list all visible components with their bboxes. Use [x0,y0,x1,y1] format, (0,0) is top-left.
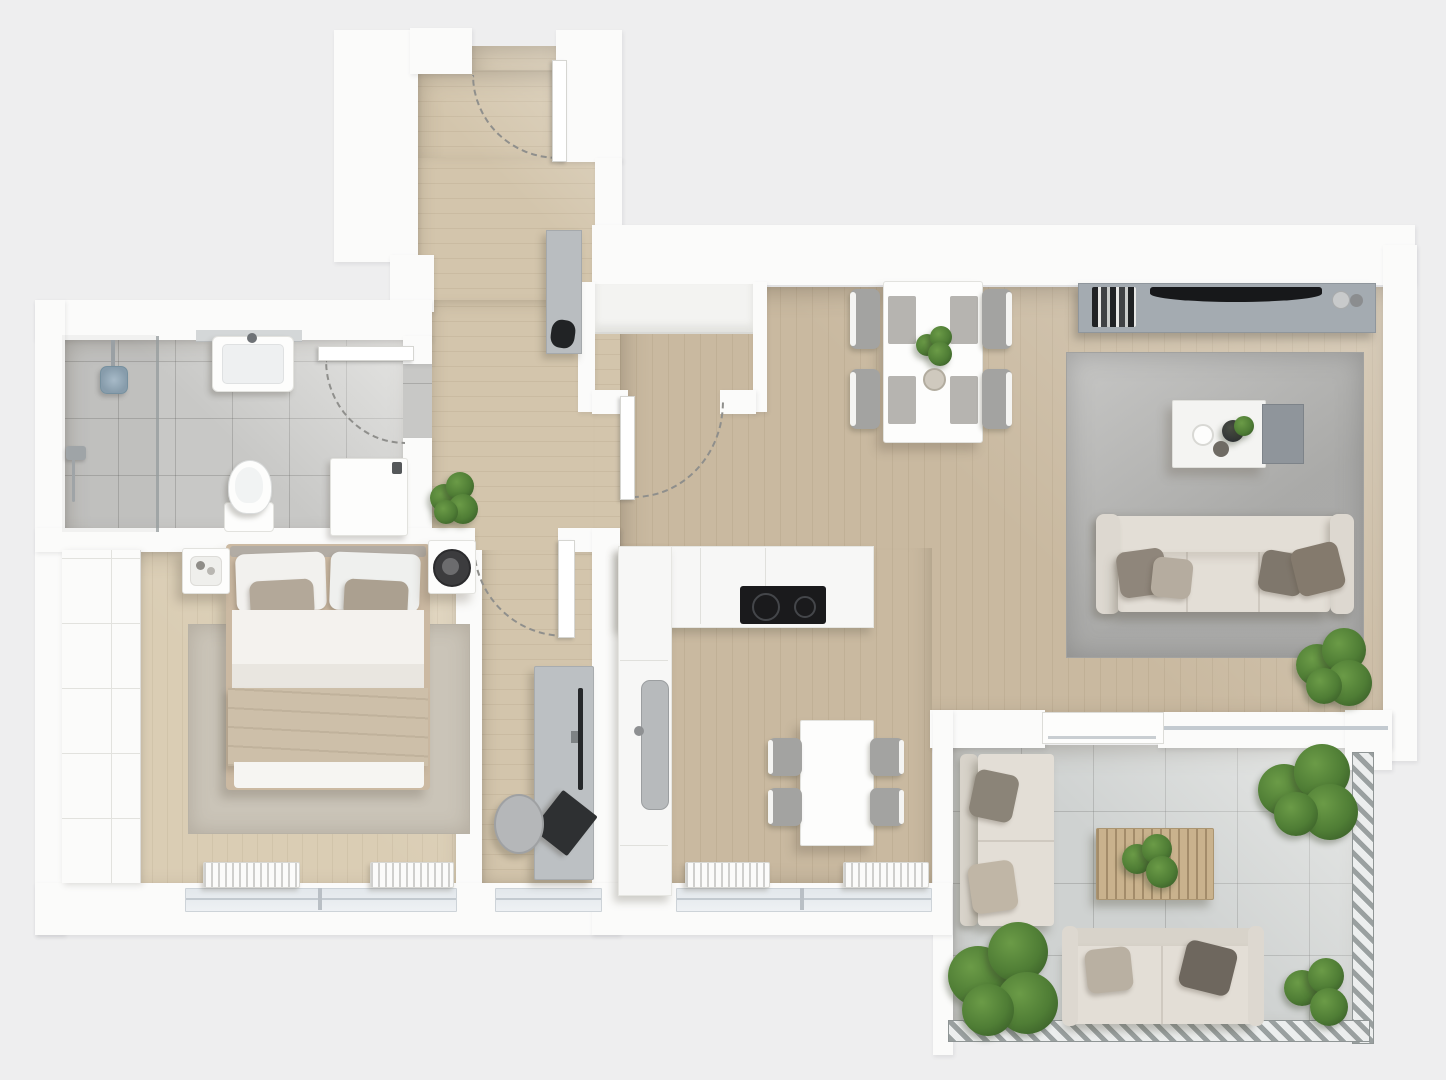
bedroom-radiator-right [370,862,454,888]
outdoor-sofa-bottom-cushion-1 [1084,946,1134,995]
kitchen-window-mullion [800,888,804,910]
kitchen-radiator-left [685,862,770,888]
shower-arm [111,340,115,368]
sofa-cushion-2 [1150,556,1194,600]
balcony-sliding-door [1042,712,1164,744]
entry-left-wall [334,30,418,262]
living-chair-1 [850,289,880,349]
bed-blanket [228,688,428,766]
living-right-wall [1383,245,1417,761]
hallway-living-strip-floor [595,396,620,532]
bathroom-door-leaf [318,346,414,361]
shower-faucet-handle [66,446,86,460]
outdoor-sofa-bottom-armrest-left [1062,926,1078,1026]
washbasin-bowl [222,344,284,384]
placemat-1 [888,296,916,344]
kitchen-chair-4 [870,788,904,826]
balcony-sliding-door-track [1048,736,1156,739]
washbasin-faucet [247,333,257,343]
outdoor-table-plant [1122,834,1180,888]
kitchen-chair-2 [768,788,802,826]
desk-monitor-stand [571,731,578,743]
toilet-seat [235,467,263,503]
placemat-3 [888,376,916,424]
desk-monitor [578,688,583,790]
kitchen-counter-seam-1 [700,548,701,624]
outdoor-sofa-bottom-armrest-right [1248,926,1264,1026]
outer-left-wall [35,300,65,935]
kitchen-radiator-right [843,862,929,888]
balcony-plant-bottom-right [1284,958,1350,1032]
bedroom-radiator-left [203,862,300,888]
kitchen-counter-seam-3 [620,660,668,661]
washer-detail [392,462,402,474]
front-door-leaf [552,60,567,162]
bed-mattress-foot [234,762,424,788]
placemat-2 [950,296,978,344]
shower-hose [72,458,75,502]
hallway-potted-plant [428,472,478,528]
living-floor-plant [1296,628,1374,708]
kitchen-table [800,720,874,846]
bedroom-door-leaf [558,540,575,638]
bedroom-window-mullion [318,888,322,910]
entry-top-wall [410,28,472,74]
living-chair-3 [982,289,1012,349]
nightstand-left-cup-2 [207,567,215,575]
kitchen-counter-seam-4 [620,845,668,846]
balcony-plant-top-right [1258,744,1362,840]
kitchen-sink-faucet [634,726,644,736]
shower-glass-screen [156,336,159,532]
nightstand-right-tray-inner [442,558,459,575]
desk-stool [494,794,544,854]
kitchen-chair-1 [768,738,802,776]
coffee-table-gray [1262,404,1304,464]
balcony-window-glass [1162,726,1388,730]
nook-window [495,888,602,912]
cooktop-burner-right [794,596,816,618]
kitchen-sink [641,680,669,810]
floor-plan-page: { "meta": { "title": "3D top-down floor … [0,0,1446,1080]
table-plant [916,326,954,366]
nightstand-left-cup [196,561,205,570]
coffee-table-bowl [1213,441,1229,457]
kitchen-left-wall [592,528,620,910]
outdoor-sofa-bottom-back [1068,928,1258,948]
shower-head [100,366,128,394]
closet-post-right [720,390,756,414]
balcony-plant-bottom-left [948,922,1063,1047]
corridor-right-wall [595,158,622,230]
console-books [1092,287,1136,327]
shower-tray-shade [62,335,156,532]
kitchen-window [676,888,932,912]
closet-shelf [595,284,753,334]
console-decor-1 [1332,291,1350,309]
kitchen-chair-3 [870,738,904,776]
nightstand-left-tray [190,556,222,586]
living-chair-2 [850,369,880,429]
placemat-4 [950,376,978,424]
table-bowl [923,368,946,391]
living-chair-4 [982,369,1012,429]
bathroom-doorway-floor [403,362,432,440]
coffee-table-cup [1192,424,1214,446]
cooktop-burner-left [752,593,780,621]
outdoor-sofa-left-cushion-2 [967,859,1020,915]
bedroom-wardrobe [62,550,141,883]
closet-door-leaf [620,396,635,500]
console-decor-2 [1350,294,1363,307]
living-top-wall [592,225,1415,285]
